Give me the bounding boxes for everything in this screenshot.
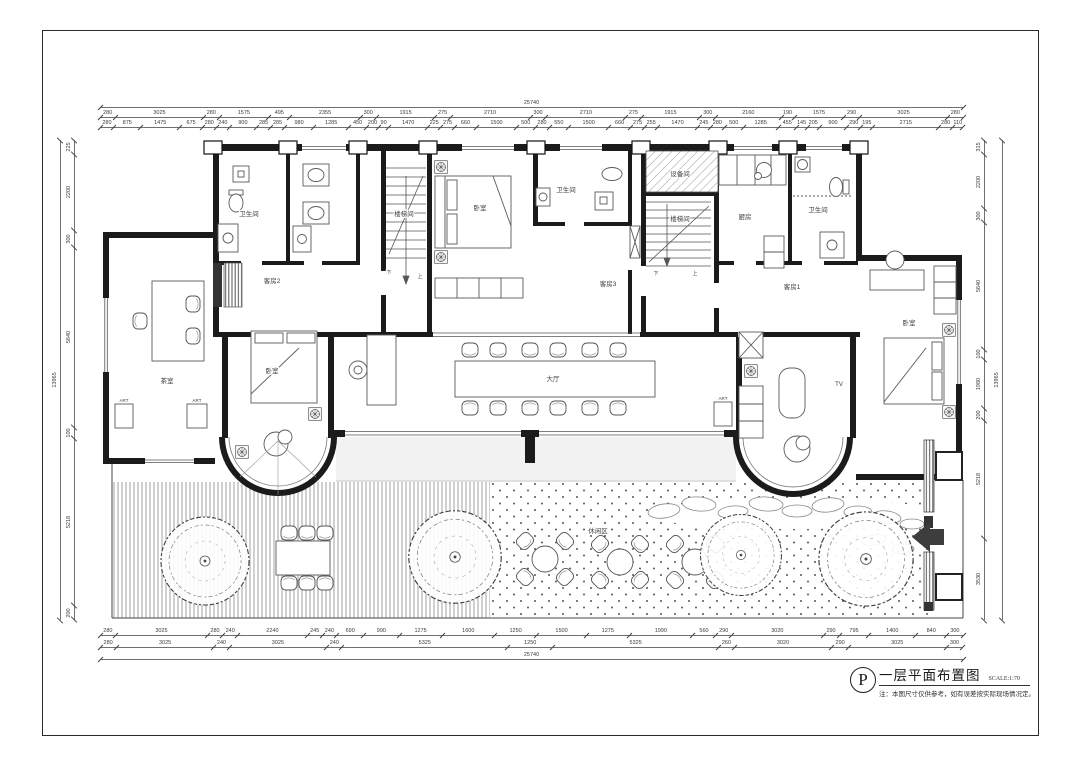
stair-down-label: 下 — [653, 271, 658, 277]
art-label: ART — [193, 398, 202, 403]
dim-right-mid: 31522003005640100198020052183530 — [976, 140, 985, 620]
dim-top-total: 25740 — [100, 99, 963, 108]
area-label-leisure: 休闲区 — [588, 526, 608, 535]
toilet — [602, 168, 622, 181]
room-label-bath-tm: 卫生间 — [556, 185, 576, 194]
dim-top-fine: 2808751475675280240900285285980128545020… — [100, 119, 963, 128]
headboard — [435, 176, 445, 248]
drawing-sheet: 卫生间 楼梯间 卧室 卫生间 设备间 楼梯间 厨房 卫生间 客房2 客房3 客房… — [0, 0, 1080, 764]
dim-right-total: 13965 — [994, 140, 1003, 620]
stair-up-label: 上 — [417, 273, 422, 280]
toilet — [830, 178, 843, 197]
tea-table — [152, 281, 204, 361]
sink — [308, 169, 324, 182]
art-box — [714, 402, 732, 426]
dim-top-mid: 2803025280157549523553001915275271030027… — [100, 109, 963, 118]
room-label-guest1: 客房1 — [784, 282, 801, 291]
art-label: ART — [120, 398, 129, 403]
dim-left-total: 13965 — [52, 140, 61, 620]
sink — [308, 207, 324, 220]
art-box — [115, 404, 133, 428]
cabinet — [739, 386, 763, 438]
wardrobe — [934, 266, 956, 314]
toilet — [229, 194, 243, 212]
room-label-bedroom-top: 卧室 — [474, 203, 488, 212]
room-label-bedroom-right: 卧室 — [903, 318, 917, 327]
room-label-bath-tl: 卫生间 — [239, 209, 259, 218]
room-label-guest3: 客房3 — [600, 279, 617, 288]
dim-bottom-fine: 2803025280240224024524069099012751600125… — [100, 627, 963, 636]
kitchen-counter — [719, 155, 786, 185]
title-block: P 一层平面布置图 SCALE:1:70 注：本图尺寸仅供参考，如有误差按实际现… — [850, 664, 1030, 698]
desk — [870, 270, 924, 290]
plan-letter-marker: P — [850, 667, 876, 693]
room-label-tea: 茶室 — [161, 376, 175, 385]
desk-chair — [886, 251, 904, 269]
room-label-stair-left: 楼梯间 — [394, 209, 414, 218]
drawing-scale: SCALE:1:70 — [989, 676, 1020, 682]
dim-bottom-mid: 2803025240302524053251250532526030202903… — [100, 639, 963, 648]
radiator-grill — [213, 263, 242, 307]
room-label-stair-right: 楼梯间 — [670, 214, 690, 223]
stair-down-label: 下 — [386, 270, 391, 276]
room-label-guest2: 客房2 — [264, 276, 281, 285]
tv-label: TV — [835, 382, 843, 388]
dim-bottom-total: 25740 — [100, 651, 963, 660]
room-label-bedroom-left: 卧室 — [266, 366, 280, 375]
room-label-bath-tr: 卫生间 — [808, 205, 828, 214]
drawing-note: 注：本图尺寸仅供参考，如有误差按实际现场情况定。 — [879, 688, 1030, 698]
lounge — [779, 368, 805, 418]
room-label-kitchen: 厨房 — [739, 212, 752, 221]
dim-left-mid: 225220030056401005218200 — [66, 140, 75, 620]
stair-up-label: 上 — [692, 270, 697, 277]
terrace — [336, 437, 736, 482]
desk — [367, 335, 396, 405]
room-label-hall: 大厅 — [547, 374, 561, 383]
art-label: ART — [719, 396, 728, 401]
drawing-title: 一层平面布置图 — [879, 664, 981, 684]
room-label-equipment: 设备间 — [670, 169, 690, 178]
art-box — [187, 404, 207, 428]
outdoor-table — [276, 541, 330, 575]
